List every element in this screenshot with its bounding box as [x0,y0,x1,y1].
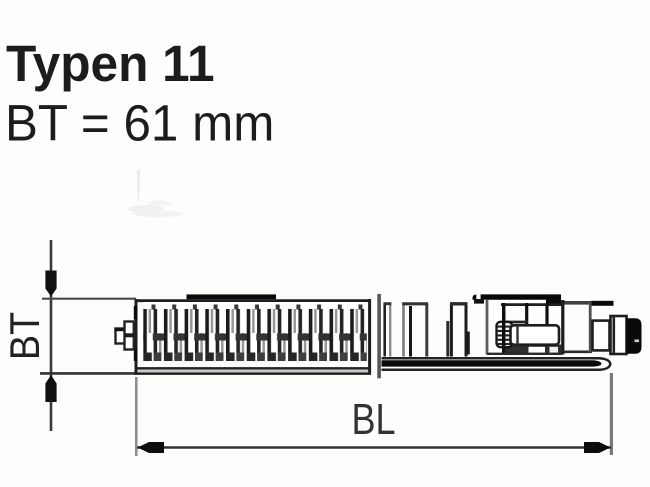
svg-text:BT: BT [2,312,48,360]
svg-text:BT = 61 mm: BT = 61 mm [5,95,274,152]
svg-text:BL: BL [351,395,395,444]
svg-text:Typen 11: Typen 11 [6,34,215,92]
